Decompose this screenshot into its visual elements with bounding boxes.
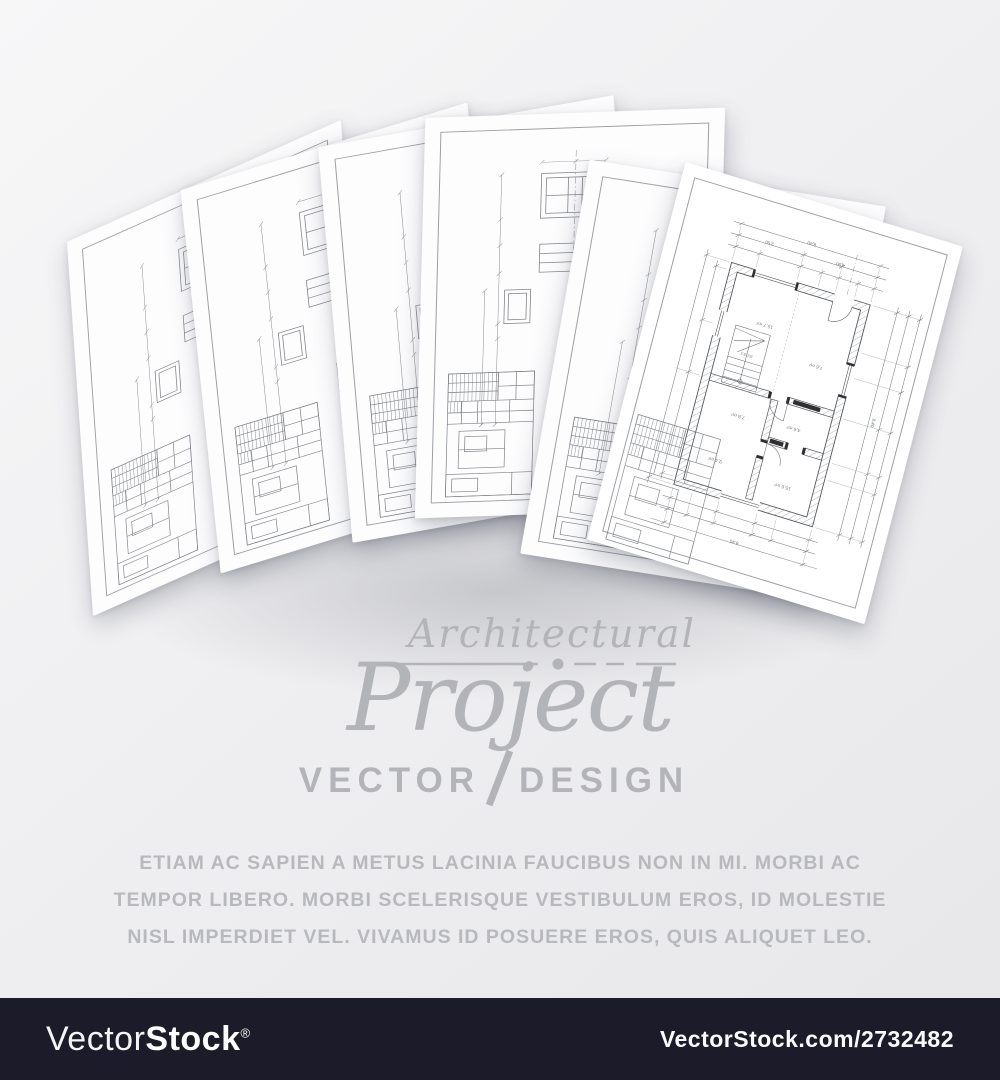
registered-mark: ® [240, 1025, 250, 1040]
dim-label-top: 8,40 [806, 240, 816, 248]
description-line-1: ETIAM AC SAPIEN A METUS LACINIA FAUCIBUS… [0, 845, 1000, 882]
dim-label-top-left: 3,50 [764, 239, 774, 247]
vectorstock-logo: VectorStock® [46, 1020, 251, 1059]
logo-slash-mark [486, 750, 513, 807]
logo-subtitle-right: DESIGN [519, 761, 689, 801]
image-url-text: VectorStock.com/2732482 [660, 1026, 954, 1053]
logo-lockup: Architectural Project VECTOR DESIGN [0, 615, 1000, 807]
titleblock-grid [606, 414, 721, 564]
description-line-3: NISL IMPERDIET VEL. VIVAMUS ID POSUERE E… [0, 919, 1000, 956]
dim-label-top-right: 4,90 [835, 261, 845, 269]
logo-subtitle-left: VECTOR [299, 761, 480, 801]
description-line-2: TEMPOR LIBERO. MORBI SCELERISQUE VESTIBU… [0, 882, 1000, 919]
room-label-3: 7,8 m² [730, 410, 745, 420]
logo-main-line: Project [10, 657, 1000, 741]
room-label-2: 7,6 m² [808, 361, 823, 371]
watermark-bar: VectorStock® VectorStock.com/2732482 [0, 998, 1000, 1080]
stock-image-canvas: 8,40 3,50 4,90 8,40 8,40 15,7 m² 7,6 m² … [0, 0, 1000, 1080]
room-label-6: 15,6 m² [774, 481, 792, 492]
logo-subtitle: VECTOR DESIGN [0, 755, 994, 807]
brand-bold-text: Stock [145, 1020, 240, 1058]
room-label-1: 15,7 m² [756, 319, 774, 330]
dim-label-bottom: 8,40 [729, 538, 739, 546]
dim-label-right: 8,40 [869, 418, 876, 428]
stair-label: 20/18,5 [740, 351, 753, 359]
brand-regular-text: Vector [46, 1020, 145, 1058]
room-label-4: 4,6 m² [786, 423, 801, 433]
description-paragraph: ETIAM AC SAPIEN A METUS LACINIA FAUCIBUS… [0, 845, 1000, 956]
